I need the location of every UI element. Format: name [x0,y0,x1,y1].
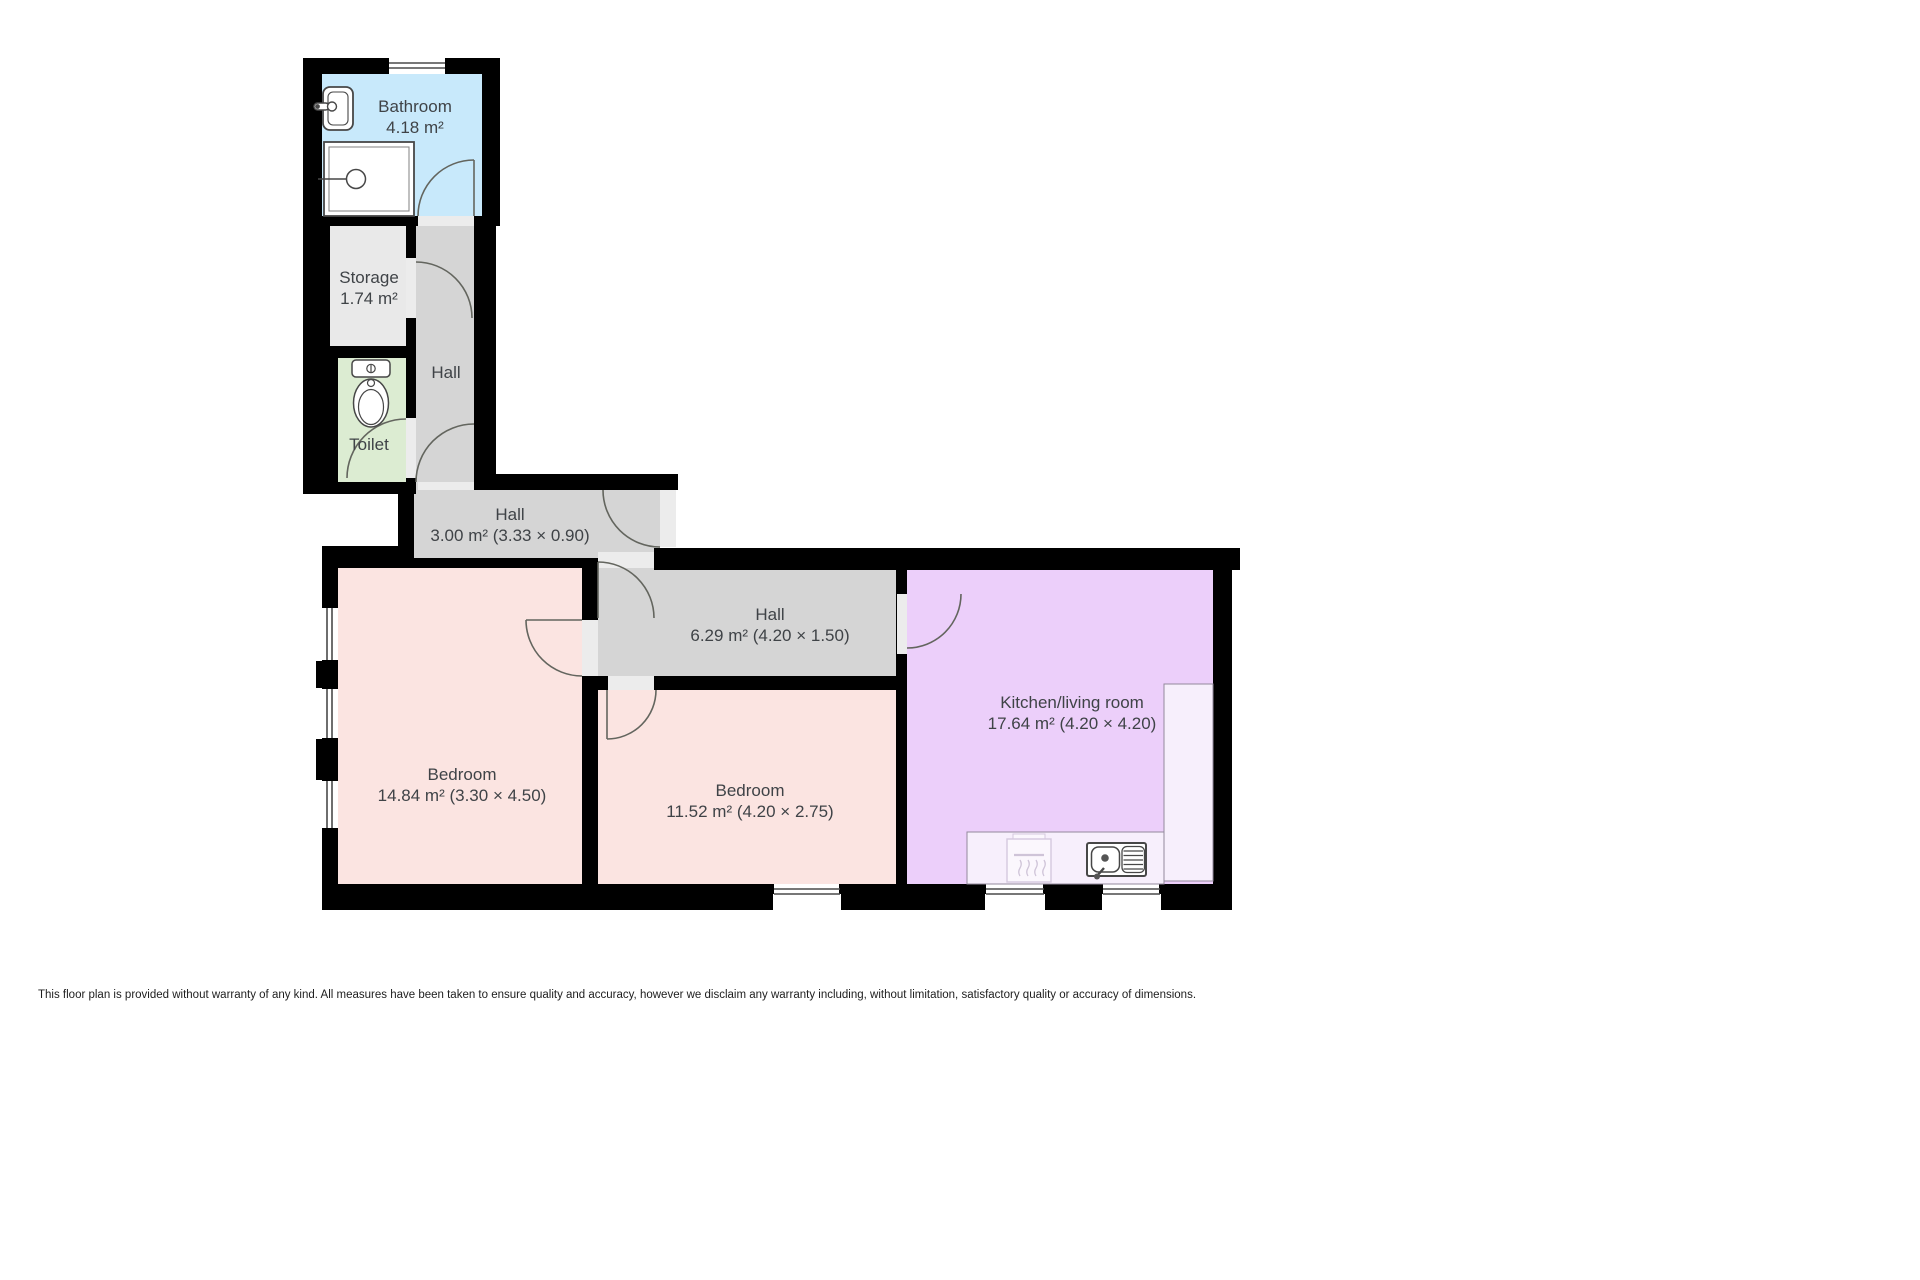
room-name: Toilet [349,434,389,455]
room-name: Kitchen/living room [988,692,1157,713]
room-name: Bathroom [378,96,452,117]
room-area: 6.29 m² (4.20 × 1.50) [690,625,849,646]
room-area: 1.74 m² [339,288,399,309]
room-area: 17.64 m² (4.20 × 4.20) [988,713,1157,734]
room-label-hall-inner: Hall6.29 m² (4.20 × 1.50) [690,604,849,646]
room-toilet [338,358,406,482]
window-top [386,58,448,74]
window-left-1 [322,605,338,663]
disclaimer-text: This floor plan is provided without warr… [38,989,1196,1001]
room-name: Bedroom [378,764,547,785]
window-bottom-kitchen-2 [1100,884,1162,910]
room-area: 3.00 m² (3.33 × 0.90) [430,525,589,546]
room-label-hall-upper: Hall [431,362,460,383]
room-area: 14.84 m² (3.30 × 4.50) [378,785,547,806]
room-name: Bedroom [666,780,833,801]
room-label-bedroom-2: Bedroom11.52 m² (4.20 × 2.75) [666,780,833,822]
room-name: Storage [339,267,399,288]
room-label-kitchen: Kitchen/living room17.64 m² (4.20 × 4.20… [988,692,1157,734]
wall-bumps [316,661,338,780]
room-area: 11.52 m² (4.20 × 2.75) [666,801,833,822]
window-bottom-bedroom [771,884,842,910]
room-label-bathroom: Bathroom4.18 m² [378,96,452,138]
room-bedroom-1 [338,568,582,884]
window-left-3 [322,778,338,831]
floor-plan-canvas: Bathroom4.18 m²Storage1.74 m²ToiletHallH… [0,0,1920,1280]
room-label-bedroom-1: Bedroom14.84 m² (3.30 × 4.50) [378,764,547,806]
room-label-storage: Storage1.74 m² [339,267,399,309]
room-label-toilet: Toilet [349,434,389,455]
room-name: Hall [431,362,460,383]
room-name: Hall [430,504,589,525]
window-bottom-kitchen-1 [983,884,1046,910]
room-hall-upper [416,216,474,490]
room-label-hall-entry: Hall3.00 m² (3.33 × 0.90) [430,504,589,546]
window-left-2 [322,686,338,741]
room-name: Hall [690,604,849,625]
room-area: 4.18 m² [378,117,452,138]
